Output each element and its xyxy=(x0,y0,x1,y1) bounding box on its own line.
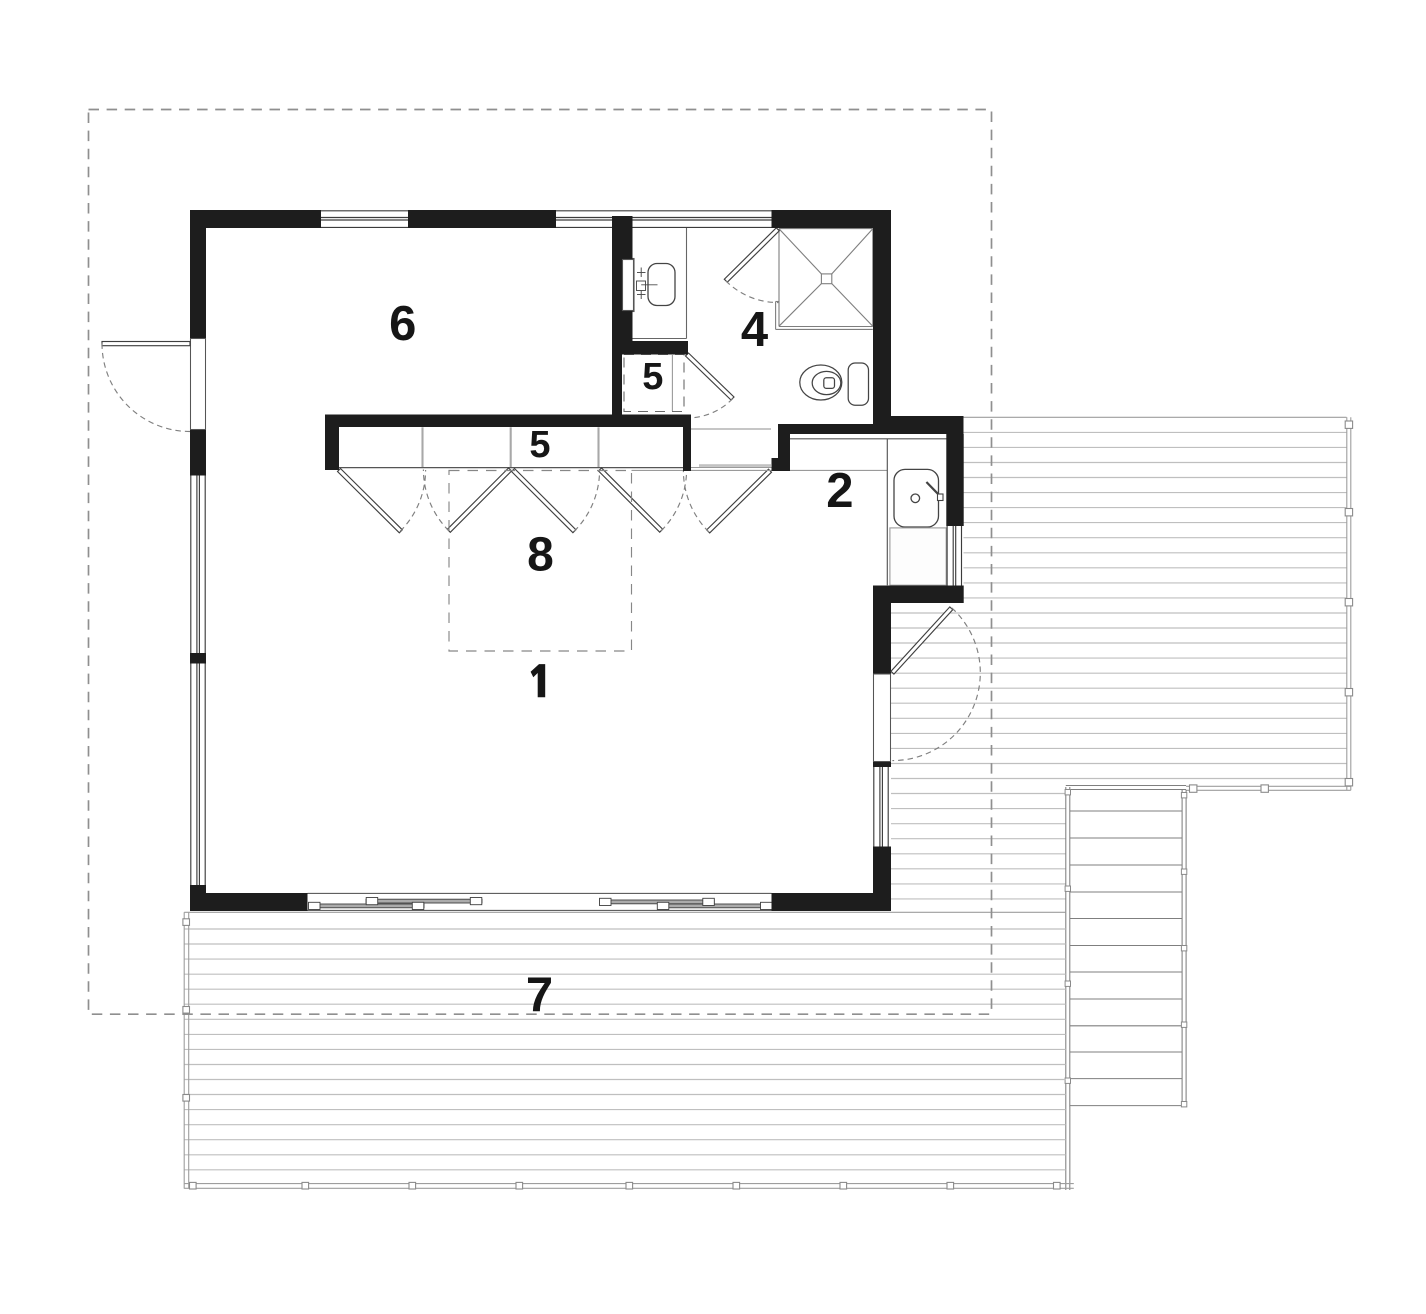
svg-text:2: 2 xyxy=(826,464,853,518)
svg-text:6: 6 xyxy=(389,297,416,351)
svg-text:8: 8 xyxy=(527,529,554,582)
svg-text:5: 5 xyxy=(642,356,663,398)
svg-text:5: 5 xyxy=(529,424,550,466)
svg-text:4: 4 xyxy=(741,303,768,357)
svg-text:7: 7 xyxy=(526,969,553,1023)
